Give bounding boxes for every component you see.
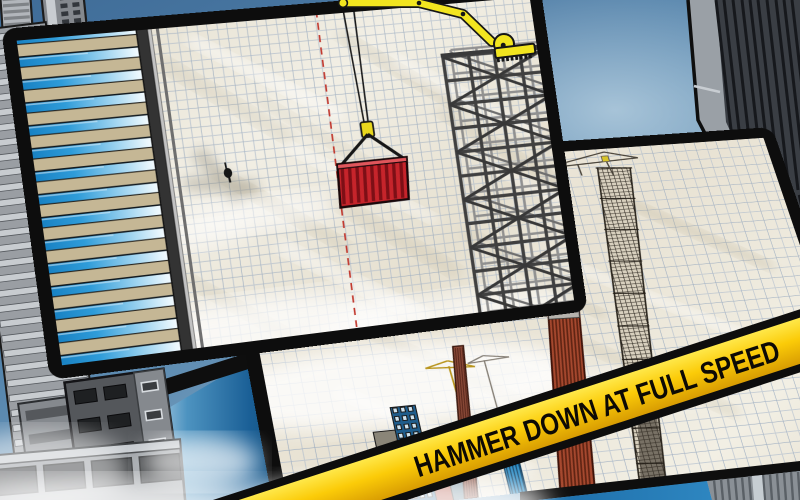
svg-text:HAMMER DOWN AT FULL SPEED: HAMMER DOWN AT FULL SPEED xyxy=(410,335,784,484)
